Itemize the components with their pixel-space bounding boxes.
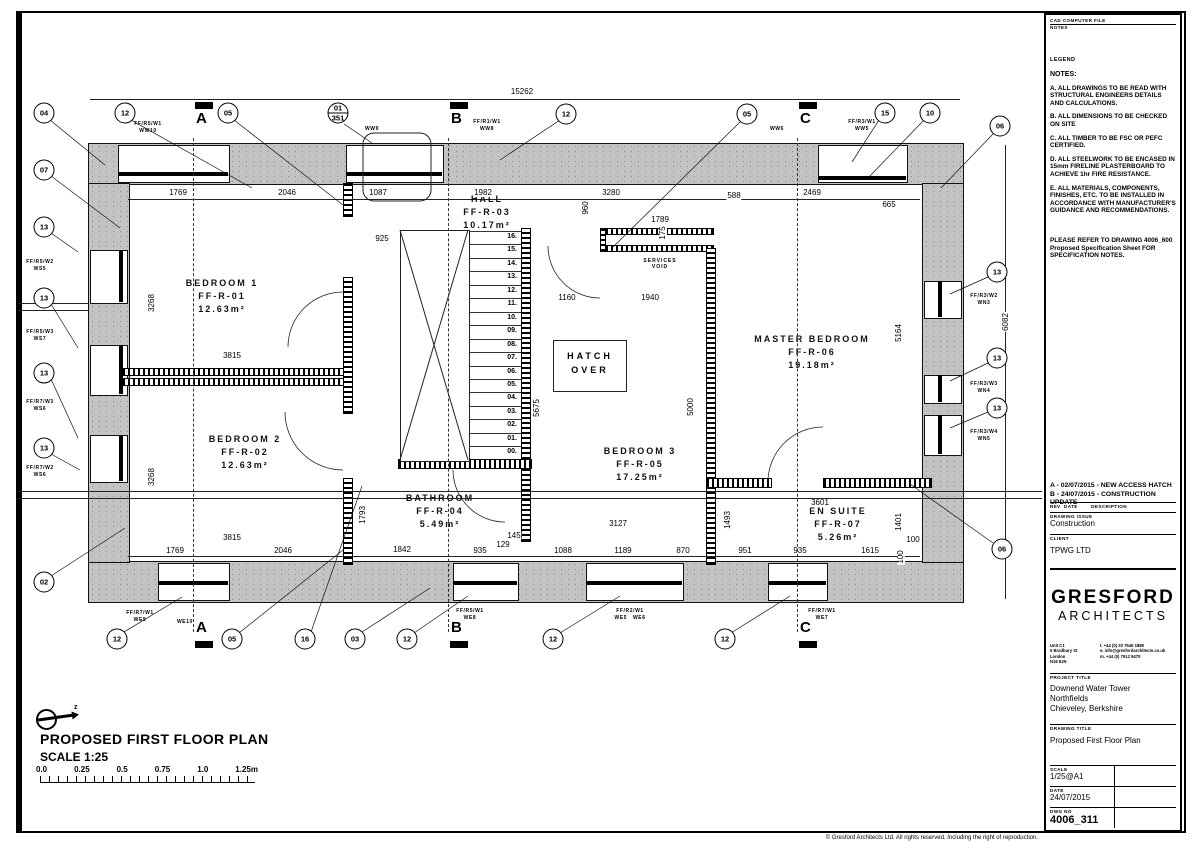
wall-tag: FF/R1/W1 WW8 [473,119,501,132]
dimension-label: 1842 [392,546,412,554]
door-swing-bedroom2 [285,412,343,470]
dimension-label: 1087 [368,189,388,197]
detail-callout: 01351 [328,103,349,124]
dimension-label: 1615 [860,547,880,555]
stair-tread-number: 04. [490,394,517,402]
leader-line [950,363,988,381]
keynote-callout: 12 [715,629,736,650]
dimension-label: 3268 [148,293,156,313]
leader-line [950,277,988,294]
dimension-label: 3268 [148,467,156,487]
leader-line [51,176,120,228]
stair-tread-number: 09. [490,327,517,335]
drawing-title-label: DRAWING TITLE [1050,726,1176,731]
file-label: CAD COMPUTER FILE [1050,18,1176,25]
dimension-label: 1940 [640,294,660,302]
stair-tread [469,231,521,232]
door-swing-hall [548,246,600,298]
section-marker [195,102,213,109]
section-line-B [448,138,449,632]
stair-tread [469,258,521,259]
north-arrow-icon: z [36,704,80,730]
plan-linework [0,0,1200,849]
wall-tag: FF/R2/W1 WE5 WE6 [614,608,645,621]
dimension-label: 1088 [553,547,573,555]
stair-tread-number: 08. [490,341,517,349]
room-label: MASTER BEDROOM FF-R-06 19.18m² [754,333,870,372]
leader-line [51,304,78,348]
section-marker [450,102,468,109]
dimension-label: 1160 [557,294,576,302]
wall-tag: FF/R7/W3 WS6 [26,399,54,412]
door-swing-bedroom1 [288,292,343,347]
rev-table-header: REV DATE DESCRIPTION [1050,504,1176,509]
keynote-callout: 05 [737,104,758,125]
dimension-label: 935 [472,547,487,555]
wall-tag: FF/R3/W2 WN3 [970,293,998,306]
keynote-callout: 06 [990,116,1011,137]
keynote-callout: 05 [218,103,239,124]
keynote-callout: 13 [34,363,55,384]
stair-tread [469,352,521,353]
plan-scale: SCALE 1:25 [40,750,108,764]
project-line: Downend Water Tower [1050,684,1176,694]
dimension-label: 588 [726,192,741,200]
stair-tread [469,406,521,407]
stair-tread-number: 03. [490,408,517,416]
dimension-label: 925 [374,235,389,243]
brand-subname: ARCHITECTS [1050,609,1176,623]
stair-tread [469,379,521,380]
dimension-label: 1769 [165,547,185,555]
floor-plan-drawing: HATCH OVER SERVICES VOID z PROPOSED FIRS… [0,0,1200,849]
keynote-callout: 15 [875,103,896,124]
wall-tag: FF/R5/W3 WS7 [26,329,54,342]
project-title-label: PROJECT TITLE [1050,675,1176,680]
dimension-label: 3601 [810,499,830,507]
keynote-callout: 12 [115,103,136,124]
door-swing-ensuite [768,427,823,482]
keynote-callout: 13 [987,348,1008,369]
notes-heading: NOTES: [1050,71,1176,79]
stair-tread-number: 00. [490,448,517,456]
revision-a: A - 02/07/2015 - NEW ACCESS HATCH [1050,482,1176,491]
file-sub-label: NOTES [1050,25,1176,30]
leader-line [50,120,105,165]
stair-tread-number: 15. [490,246,517,254]
dimension-label: 960 [582,200,590,215]
stair-tread-number: 06. [490,368,517,376]
keynote-callout: 16 [295,629,316,650]
dimension-label: 1189 [613,547,632,555]
stair-tread-number: 10. [490,314,517,322]
wall-tag: FF/R7/W1 WE7 [808,608,836,621]
dimension-label: 5164 [895,323,903,343]
dimension-label: 1789 [650,216,670,224]
scalebar-labels: 0.0 0.25 0.5 0.75 1.0 1.25m [36,765,258,774]
keynote-callout: 10 [920,103,941,124]
client-label: CLIENT [1050,536,1176,541]
room-label: BEDROOM 3 FF-R-05 17.25m² [604,445,677,484]
legend-label: LEGEND [1050,57,1176,63]
keynote-callout: 13 [987,262,1008,283]
room-label: HALL FF-R-03 10.17m² [463,193,511,232]
hatch-over-label: HATCH OVER [553,340,627,392]
keynote-callout: 03 [345,629,366,650]
section-line-C [797,138,798,632]
brand-contact: t. +44 (0) 20 7549 1888e. info@gresforda… [1100,643,1165,665]
wall-tag: WW9 [365,126,379,133]
keynote-callout: 12 [107,629,128,650]
section-letter: A [196,110,207,127]
wall-tag: FF/R3/W3 WN4 [970,381,998,394]
copyright-note: © Gresford Architects Ltd. All rights re… [558,835,1038,841]
section-marker [195,641,213,648]
leader-line [910,484,993,543]
leader-line [950,412,988,428]
section-letter: A [196,619,207,636]
dimension-label: 1982 [473,189,493,197]
note-a: A. ALL DRAWINGS TO BE READ WITH STRUCTUR… [1050,85,1176,108]
wall-tag: FF/R5/W2 WS5 [26,259,54,272]
stair-tread-number: 12. [490,287,517,295]
note-b: B. ALL DIMENSIONS TO BE CHECKED ON SITE [1050,113,1176,128]
dimension-label: 3280 [601,189,621,197]
note-c: C. ALL TIMBER TO BE FSC OR PEFC CERTIFIE… [1050,135,1176,150]
leader-line [51,454,80,470]
keynote-callout: 05 [222,629,243,650]
leader-line [239,550,343,633]
leader-line [500,120,560,160]
date-value: 24/07/2015 [1050,793,1110,802]
issue-value: Construction [1050,519,1176,528]
section-letter: B [451,619,462,636]
dimension-label: 2469 [802,189,822,197]
room-label: BATHROOM FF-R-04 5.49m² [406,492,474,531]
note-d: D. ALL STEELWORK TO BE ENCASED IN 15mm F… [1050,156,1176,179]
stair-tread [469,366,521,367]
brand-name: GRESFORD [1050,587,1176,609]
keynote-callout: 07 [34,160,55,181]
leader-line [362,588,430,632]
stair-tread-number: 16. [490,233,517,241]
wall-tag: WE10 [177,619,193,626]
dimension-label: 1769 [168,189,188,197]
section-letter: C [800,619,811,636]
dimension-label: 1401 [895,512,903,532]
wall-tag: FF/R7/W1 WE9 [126,610,154,623]
keynote-callout: 13 [34,438,55,459]
dimension-label: 15262 [510,88,534,96]
room-label: EN SUITE FF-R-07 5.26m² [809,505,867,544]
stair-tread [469,312,521,313]
stair-tread [469,392,521,393]
stair-tread-number: 14. [490,260,517,268]
spec-reference: PLEASE REFER TO DRAWING 4006_600 Propose… [1050,237,1176,260]
stair-tread [469,433,521,434]
dimension-label: 2046 [277,189,297,197]
keynote-callout: 04 [34,103,55,124]
dimension-label: 870 [675,547,690,555]
stair-tread [469,325,521,326]
stair-tread [469,446,521,447]
leader-line [560,596,620,633]
leader-line [51,528,125,576]
section-letter: C [800,110,811,127]
leader-line [612,121,741,248]
dimension-label: 665 [881,201,896,209]
leader-line [941,133,994,188]
stair-tread [469,271,521,272]
dimension-label: 6082 [1002,312,1010,332]
stair-tread-number: 01. [490,435,517,443]
dimension-label: 145 [506,532,521,540]
leader-line [731,596,790,633]
keynote-callout: 12 [397,629,418,650]
client-value: TPWG LTD [1050,546,1176,555]
dimension-label: 951 [737,547,752,555]
scalebar-ruler [40,776,255,783]
room-label: BEDROOM 2 FF-R-02 12.63m² [209,433,282,472]
section-marker [450,641,468,648]
stair-tread-number: 11. [490,300,517,308]
keynote-callout: 12 [556,104,577,125]
wall-tag: FF/R7/W2 WS6 [26,465,54,478]
section-letter: B [451,110,462,127]
section-marker [799,641,817,648]
plan-title: PROPOSED FIRST FLOOR PLAN [40,731,269,747]
section-marker [799,102,817,109]
scale-value: 1/25@A1 [1050,772,1110,781]
wall-tag: FF/R3/W4 WN5 [970,429,998,442]
note-e: E. ALL MATERIALS, COMPONENTS, FINISHES, … [1050,185,1176,215]
keynote-callout: 06 [992,539,1013,560]
keynote-callout: 13 [987,398,1008,419]
leader-line [51,233,78,252]
dimension-label: 3127 [608,520,628,528]
wall-tag: FF/R3/W1 WW5 [848,119,876,132]
dimension-label: 2046 [273,547,293,555]
services-void-label: SERVICES VOID [643,258,676,270]
wall-tag: FF/R5/W1 WW10 [134,121,162,134]
leader-line [311,486,362,632]
dimension-label: 175 [659,225,667,240]
keynote-callout: 02 [34,572,55,593]
dimension-label: 3815 [222,352,242,360]
dimension-label: 1793 [359,505,367,525]
dimension-label: 100 [905,536,920,544]
dimension-label: 5675 [533,398,541,418]
stair-tread-number: 13. [490,273,517,281]
project-line: Northfields [1050,694,1176,704]
dimension-label: 1493 [724,510,732,530]
stair-tread [469,298,521,299]
stair-tread-number: 02. [490,421,517,429]
brand-address: Unit C15 Bradbury St LondonN16 8JN [1050,643,1094,665]
keynote-callout: 13 [34,217,55,238]
leader-line [868,120,924,178]
dwg-no-value: 4006_311 [1050,814,1110,826]
stair-tread-number: 07. [490,354,517,362]
stair-tread [469,339,521,340]
keynote-callout: 13 [34,288,55,309]
section-line-A [193,138,194,632]
dimension-label: 100 [897,549,905,564]
keynote-callout: 12 [543,629,564,650]
stair-tread [469,285,521,286]
stair-tread [469,244,521,245]
wall-tag: WW6 [770,126,784,133]
dimension-label: 935 [792,547,807,555]
stair-tread [469,419,521,420]
project-line: Chieveley, Berkshire [1050,704,1176,714]
room-label: BEDROOM 1 FF-R-01 12.63m² [186,277,259,316]
dimension-label: 3815 [222,534,242,542]
leader-line [51,379,78,438]
stair-tread-number: 05. [490,381,517,389]
drawing-title-value: Proposed First Floor Plan [1050,736,1176,745]
title-block-panel: CAD COMPUTER FILE NOTES LEGEND NOTES: A.… [1044,13,1182,832]
dimension-label: 129 [495,541,510,549]
dimension-label: 5000 [687,397,695,417]
